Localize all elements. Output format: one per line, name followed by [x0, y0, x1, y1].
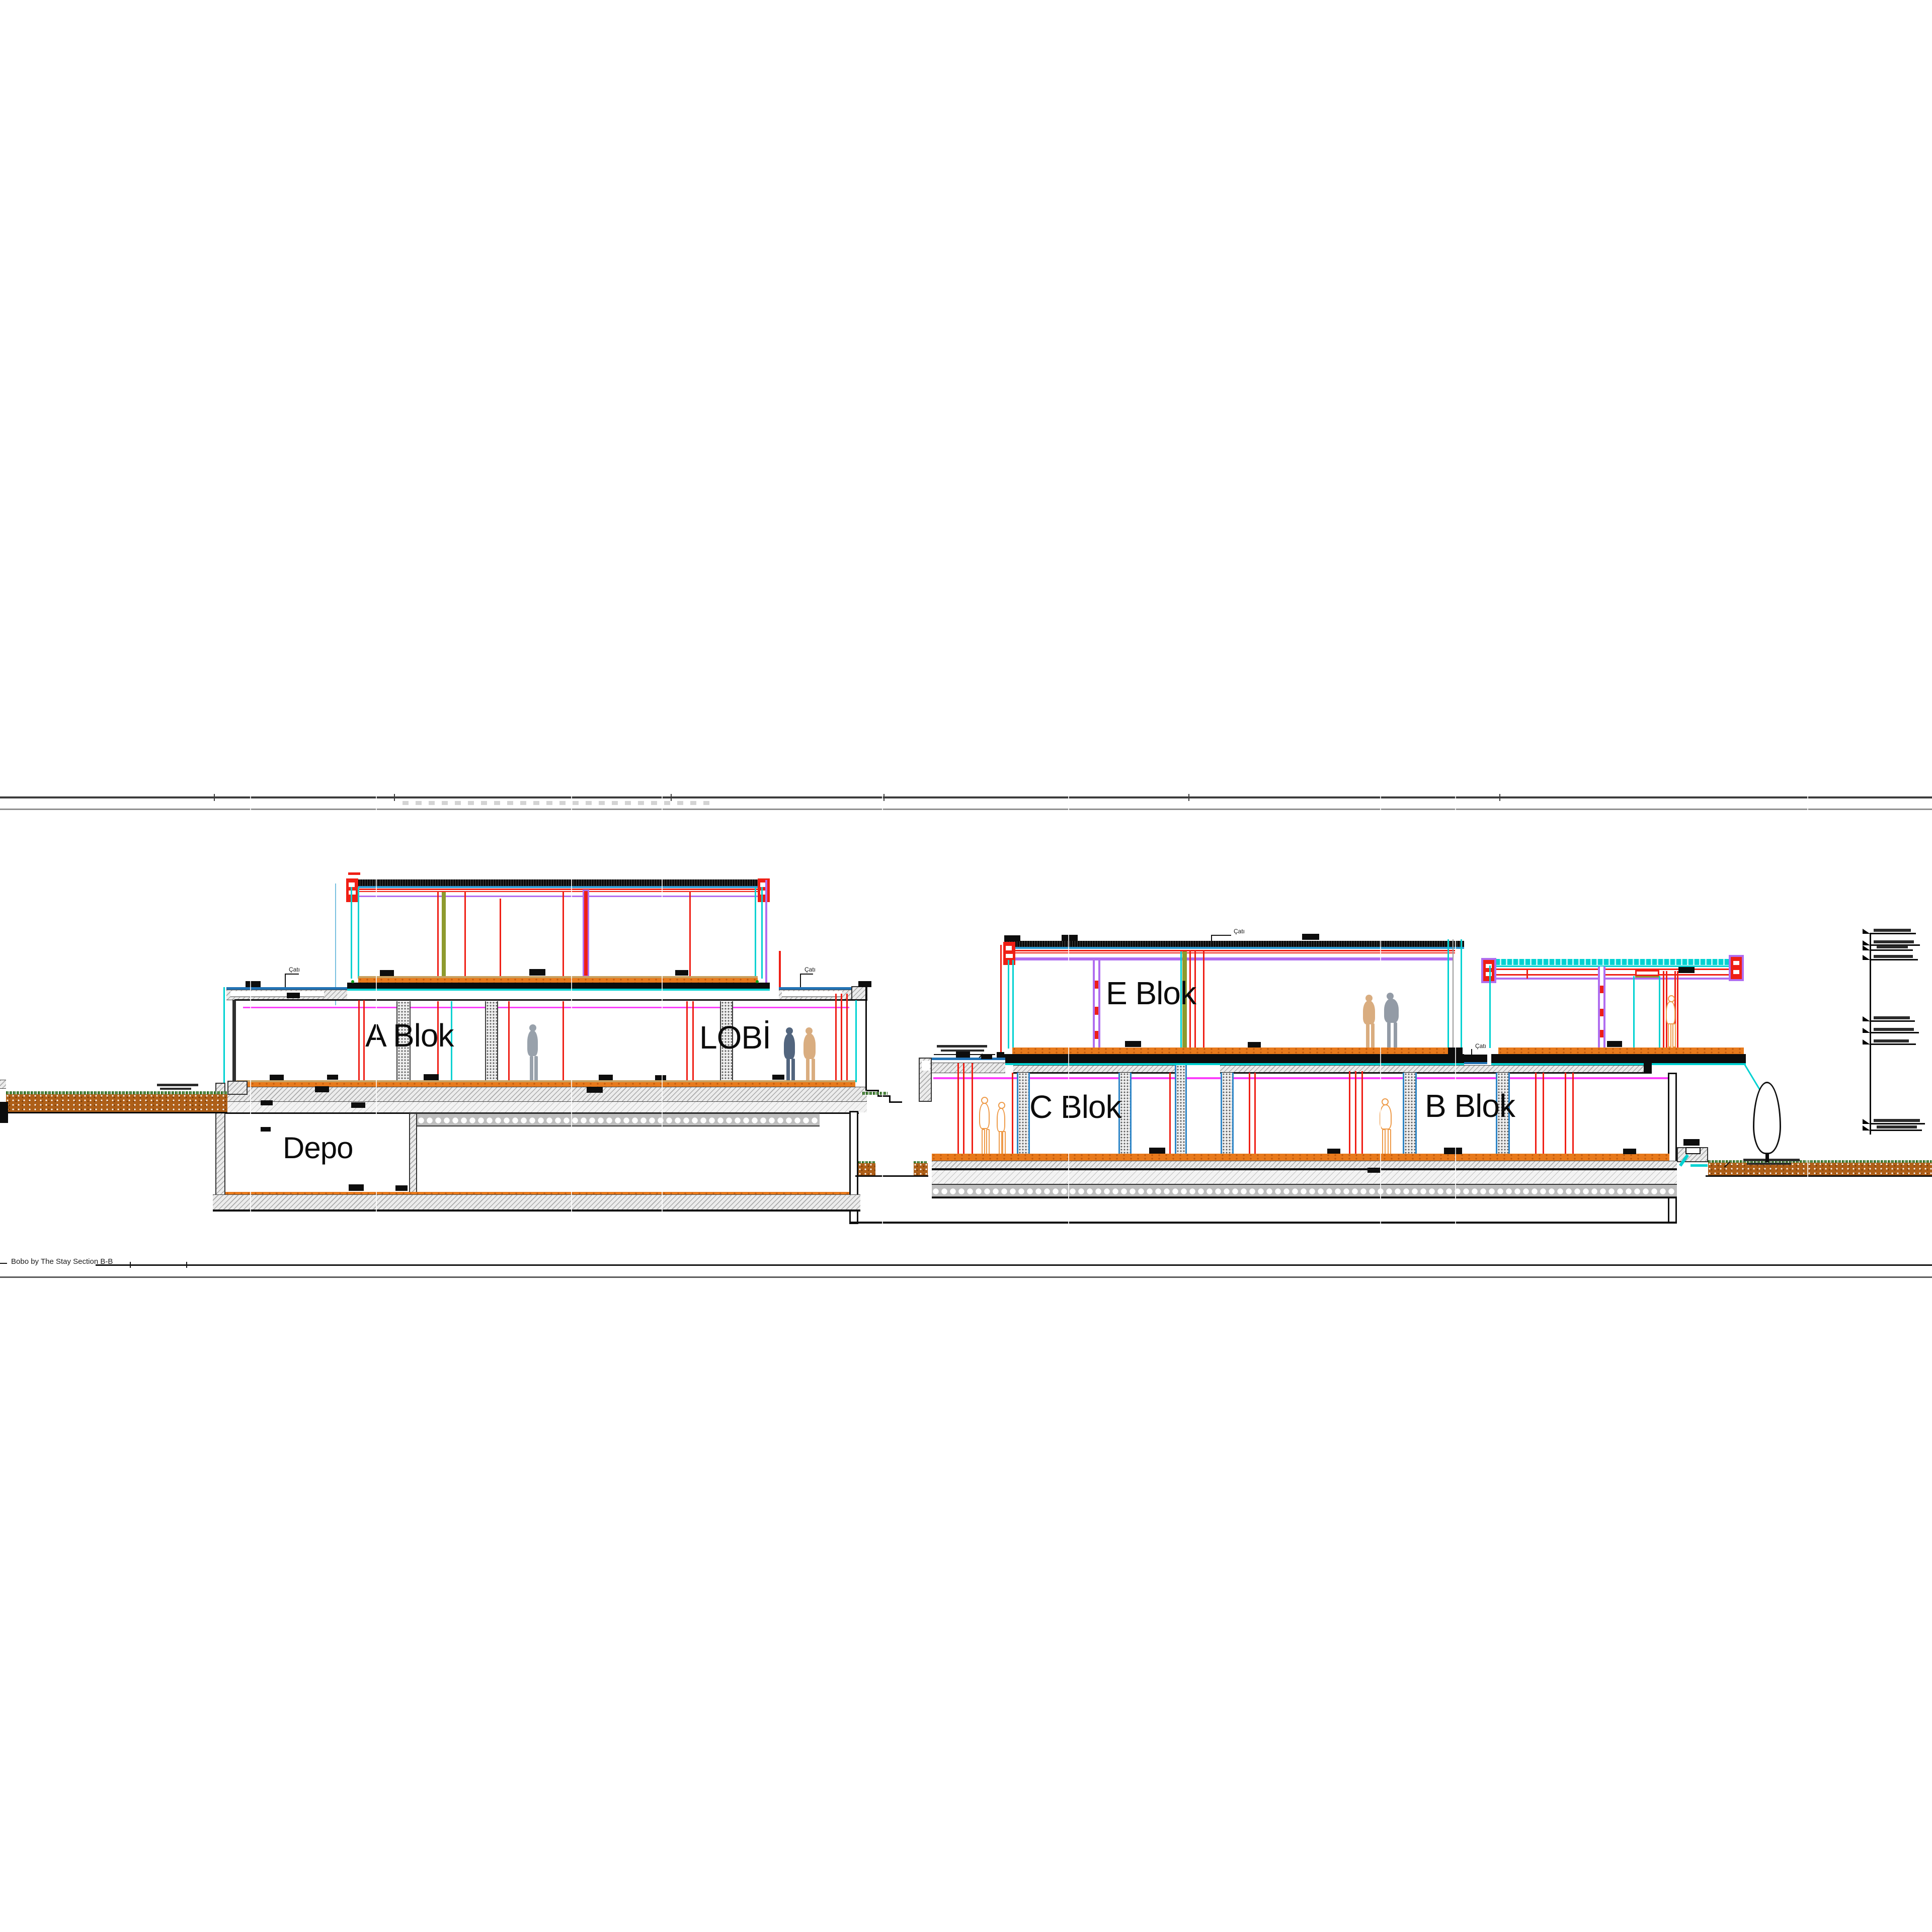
floor-fixture-glyph: [270, 1075, 284, 1080]
slab-end: [1644, 1063, 1652, 1074]
tree-canopy: [1753, 1082, 1781, 1154]
joint-dot: [756, 980, 759, 983]
note-leader: [1211, 935, 1212, 941]
person-figure: [1381, 993, 1405, 1048]
floor-slab: [1491, 1054, 1746, 1063]
marker-triangle: [1863, 1016, 1870, 1021]
part: [1363, 1001, 1375, 1024]
level-marker: [1862, 945, 1932, 952]
glass-line: [223, 987, 225, 1083]
part: [784, 1033, 795, 1059]
column: [1403, 1073, 1417, 1157]
person-figure: [1360, 995, 1380, 1048]
stud-line: [686, 1001, 688, 1082]
note-leader: [800, 974, 801, 987]
roof-glyph: [1678, 967, 1695, 973]
floor-finish: [1012, 1048, 1448, 1054]
person-figure: [1664, 995, 1679, 1048]
marker-line: [1870, 1043, 1916, 1045]
dash: [1095, 1007, 1098, 1015]
part: [979, 1103, 990, 1129]
step-line: [889, 1101, 902, 1103]
part: [1387, 1022, 1391, 1048]
roof-glass-band: [1483, 959, 1744, 965]
tree: [1753, 1082, 1782, 1163]
wall-frame-line: [765, 880, 767, 987]
slot: [1733, 970, 1739, 974]
marker-line: [1870, 949, 1913, 951]
roof-red-line: [1495, 974, 1733, 976]
slot: [1733, 961, 1739, 965]
corner-bracket-left: [1481, 958, 1496, 983]
glass-line: [358, 887, 359, 979]
person-figure: [995, 1102, 1009, 1156]
floor-finish: [236, 1082, 855, 1087]
end-wall: [1668, 1073, 1677, 1224]
drain-channel: [1685, 1147, 1701, 1154]
stud-line: [1169, 1073, 1171, 1159]
recess: [922, 1061, 930, 1071]
marker-triangle: [1863, 1028, 1870, 1033]
part: [1672, 1023, 1676, 1048]
floor-fixture-glyph: [675, 970, 688, 976]
fixture-glyph: [395, 1185, 408, 1191]
glass-line: [1008, 960, 1009, 1049]
level-marker: [1862, 955, 1932, 962]
glass-line: [1012, 960, 1014, 1049]
floor-fixture-glyph: [1444, 1148, 1462, 1154]
terrace-glyph: [981, 1054, 992, 1059]
marker-text: [1877, 945, 1908, 948]
part: [1666, 1001, 1675, 1024]
person-figure: [525, 1024, 542, 1083]
dash: [1600, 986, 1603, 993]
roof-membrane-line: [347, 886, 770, 888]
floor-slab: [932, 1161, 1677, 1169]
person-figure: [800, 1027, 821, 1085]
blinding-layer: [932, 1170, 1677, 1184]
terrace-recess: [230, 991, 324, 997]
sheet-seam: [1380, 796, 1381, 1278]
rule-tick: [214, 794, 215, 801]
part: [1384, 999, 1399, 1023]
glass-line: [855, 1000, 857, 1082]
stud-line: [972, 1063, 973, 1159]
olive-post: [442, 892, 446, 978]
marker-triangle: [1863, 945, 1870, 950]
fixture-glyph: [261, 1127, 271, 1132]
floor-finish: [932, 1154, 1669, 1161]
bottom-rule-tick: [186, 1262, 187, 1268]
part: [1382, 1129, 1386, 1155]
section-drawing-canvas: Çatı Çatı A Blok LOBİ: [0, 0, 1932, 1932]
ceiling-line: [1495, 978, 1738, 980]
marker-text: [1874, 1028, 1914, 1031]
hollowcore-slab: [932, 1184, 1677, 1197]
sheet-seam: [1455, 796, 1456, 1278]
slab-line: [932, 1197, 1677, 1198]
terrace-glyph: [956, 1052, 970, 1058]
note-leader: [285, 974, 299, 975]
roof-glass-line: [1483, 965, 1744, 967]
rule-tick: [671, 794, 672, 801]
glass-line: [761, 887, 763, 979]
marker-triangle: [1863, 940, 1870, 945]
ceiling-edge-line: [1013, 1072, 1186, 1074]
footer-tick: [0, 1263, 7, 1264]
room-label-e-blok: E Blok: [1106, 977, 1196, 1009]
sheet-seam: [662, 796, 663, 1278]
ceiling-line: [356, 896, 761, 897]
level-marker: [1862, 929, 1932, 936]
stud-line: [1012, 1073, 1013, 1156]
stud-line: [963, 1063, 964, 1159]
foundation-edge: [213, 1210, 860, 1212]
glass-line: [1447, 939, 1449, 1048]
soil-hatch: [6, 1094, 227, 1113]
roof-red-line: [1012, 952, 1455, 953]
part: [803, 1033, 816, 1059]
fixture-glyph: [351, 1102, 365, 1108]
floor-fixture-glyph: [1607, 1041, 1622, 1047]
stud-line: [500, 899, 501, 978]
tree-trunk: [1765, 1153, 1769, 1162]
lintel-detail: [1635, 970, 1659, 976]
lintel-line: [1635, 976, 1659, 978]
sheet-seam: [376, 796, 377, 1278]
part: [1380, 1104, 1392, 1130]
window-mullion: [1093, 960, 1100, 1048]
marker-triangle: [1863, 955, 1870, 960]
glass-line: [1489, 965, 1491, 1048]
fixture-glyph: [1367, 1168, 1381, 1173]
part: [1394, 1022, 1397, 1048]
stud-line: [562, 1001, 564, 1082]
dash: [1600, 1009, 1603, 1016]
room-label-b-blok: B Blok: [1425, 1090, 1515, 1122]
stud-line: [957, 1063, 959, 1159]
marker-line: [1870, 1130, 1922, 1131]
ceiling-edge-line: [234, 999, 867, 1001]
fixture-glyph: [261, 1100, 273, 1105]
slot: [1486, 964, 1492, 968]
step-detail: [1464, 1055, 1487, 1062]
terrace-glyph: [858, 981, 871, 987]
roof-slab-hatch: [1004, 941, 1464, 947]
bottom-rule-tick: [130, 1262, 131, 1268]
marker-text: [1874, 955, 1913, 958]
sheet-seam: [571, 796, 572, 1278]
stud-line: [1543, 1073, 1544, 1156]
marker-line: [1870, 933, 1916, 934]
slot: [349, 882, 355, 887]
fixture-glyph: [349, 1184, 364, 1191]
note-leader: [285, 974, 286, 987]
faint-dash-band: [403, 801, 712, 805]
ground-line: [1706, 1175, 1932, 1177]
soil-hatch: [914, 1163, 928, 1176]
slot: [349, 891, 356, 895]
room-label-c-blok: C Blok: [1029, 1091, 1121, 1123]
part: [1002, 1131, 1006, 1156]
wall-line: [1453, 939, 1454, 1048]
bracket-core: [1731, 957, 1742, 979]
roof-slab-hatch: [347, 879, 770, 886]
foundation-line: [849, 1222, 1677, 1224]
window-mullion: [583, 890, 589, 977]
glass-line: [351, 887, 352, 979]
bracket-core: [1483, 960, 1494, 981]
roof-red-line: [352, 891, 766, 892]
bottom-rule-2: [0, 1276, 1932, 1278]
floor-fixture-glyph: [327, 1075, 338, 1080]
column: [1221, 1073, 1234, 1157]
dash: [1095, 1031, 1098, 1039]
level-marker: [1862, 1028, 1932, 1035]
marker-text: [1874, 1016, 1910, 1019]
note-leader: [1471, 1049, 1472, 1055]
roof-red-line: [352, 889, 766, 890]
marker-text: [1874, 940, 1914, 943]
end-wall: [232, 1000, 236, 1083]
window-mullion: [1598, 967, 1605, 1048]
part: [1668, 1023, 1671, 1048]
top-rule: [0, 796, 1932, 798]
floor-fixture-glyph: [1248, 1042, 1261, 1048]
part: [534, 1056, 538, 1083]
person-figure: [977, 1097, 994, 1156]
marker-text: [1874, 929, 1911, 932]
floor-fixture-glyph: [1327, 1149, 1340, 1154]
stud-line: [1249, 1073, 1250, 1156]
marker-text: [1874, 1039, 1909, 1042]
stud-line: [1565, 1073, 1566, 1156]
roof-glyph: [1062, 935, 1078, 941]
retaining-wall: [0, 1102, 8, 1123]
terrace-recess: [782, 991, 842, 997]
part: [527, 1030, 538, 1056]
floor-soffit-line: [347, 989, 770, 991]
parapet-wall: [919, 1058, 932, 1102]
roof-note: Çatı: [1475, 1043, 1486, 1049]
eave-bracket-left: [346, 878, 358, 902]
fixture-glyph: [315, 1086, 329, 1092]
sheet-seam: [882, 796, 883, 1278]
fixture-glyph: [587, 1087, 603, 1093]
marker-text: [1877, 1125, 1917, 1129]
marker-triangle: [1863, 1039, 1870, 1044]
room-label-a-blok: A Blok: [365, 1019, 453, 1052]
slot: [1006, 946, 1012, 950]
floor-slab: [1003, 1054, 1464, 1063]
soil-hatch: [858, 1163, 875, 1176]
column: [1175, 1065, 1187, 1157]
column: [1017, 1073, 1030, 1157]
ceiling-line: [1013, 957, 1453, 960]
dash: [1600, 1030, 1603, 1037]
hollowcore-slab: [417, 1113, 820, 1126]
ceiling-edge-line: [1220, 1072, 1652, 1074]
stub-line: [1526, 969, 1528, 979]
stud-line: [692, 1001, 694, 1082]
roof-note: Çatı: [804, 967, 816, 973]
sheet-seam: [1807, 796, 1808, 1278]
marker-triangle: [1863, 1125, 1870, 1131]
glass-line: [1633, 976, 1635, 1048]
floor-fixture-glyph: [380, 970, 394, 976]
rule-tick: [1499, 794, 1500, 801]
micro-note: [160, 1088, 191, 1090]
part: [999, 1131, 1002, 1156]
foundation-slab: [213, 1194, 860, 1210]
roof-glyph: [1302, 934, 1319, 940]
person-figure: [1377, 1098, 1397, 1155]
floor-fixture-glyph: [1125, 1041, 1141, 1047]
micro-note: [937, 1045, 987, 1048]
floor-fixture-glyph: [655, 1075, 666, 1080]
step-wall-line: [865, 987, 867, 1091]
note-leader: [1211, 935, 1231, 936]
basement-wall: [409, 1113, 417, 1193]
fixture-glyph: [1683, 1139, 1700, 1146]
floor-slab: [347, 983, 770, 989]
drain-pipe: [1691, 1164, 1708, 1167]
floor-fixture-glyph: [529, 969, 545, 976]
bottom-rule: [96, 1264, 1932, 1266]
grass-strip: [862, 1092, 888, 1095]
marker-line: [1870, 959, 1918, 960]
marker-line: [1870, 1123, 1925, 1124]
roof-note: Çatı: [1234, 928, 1245, 934]
slot: [1006, 954, 1013, 958]
stud-line: [1572, 1073, 1574, 1156]
leader-line: [1000, 945, 1002, 1061]
marker-triangle: [1863, 1119, 1870, 1124]
floor-finish: [1498, 1048, 1744, 1054]
eave-bracket-right: [758, 878, 770, 902]
roof-membrane-line: [1004, 947, 1464, 949]
sheet-seam: [1068, 796, 1069, 1278]
rule-tick: [394, 794, 395, 801]
marker-triangle: [1863, 929, 1870, 934]
marker-line: [1870, 1020, 1915, 1022]
glass-line: [1461, 939, 1462, 1048]
roof-red-line: [1012, 950, 1455, 951]
note-leader: [800, 974, 813, 975]
part: [982, 1129, 985, 1156]
roof-red-line: [1495, 969, 1733, 970]
terrace-glyph: [287, 993, 300, 998]
slab-step: [227, 1081, 248, 1095]
leader-line: [779, 951, 781, 988]
sheet-seam: [250, 796, 251, 1278]
part: [986, 1129, 990, 1156]
marker-text: [1874, 1119, 1920, 1122]
part: [997, 1108, 1005, 1132]
marker-line: [1870, 1032, 1919, 1033]
stud-line: [1535, 1073, 1537, 1156]
terrace-slab: [924, 1063, 1005, 1073]
top-rule-2: [0, 809, 1932, 810]
stud-line: [464, 892, 466, 978]
stud-line: [437, 892, 439, 978]
glass-line: [1659, 976, 1660, 1048]
level-marker: [1862, 1016, 1932, 1023]
kerb: [0, 1080, 6, 1089]
part: [1366, 1023, 1370, 1048]
slot: [1486, 972, 1492, 976]
micro-note: [157, 1084, 198, 1086]
terrace-glyph: [246, 981, 261, 987]
part: [530, 1056, 533, 1083]
floor-fixture-glyph: [599, 1075, 613, 1080]
ground-line: [0, 1112, 227, 1113]
stud-line: [689, 892, 691, 978]
insulation-line: [243, 1007, 849, 1008]
room-label-lobi: LOBİ: [699, 1021, 771, 1054]
stud-line: [1203, 951, 1204, 1048]
corner-bracket-right: [1729, 955, 1744, 981]
column: [485, 1001, 498, 1083]
insulation-line: [933, 1077, 1669, 1079]
soil-hatch: [1708, 1163, 1932, 1176]
rule-tick: [883, 794, 884, 801]
dash: [1095, 981, 1098, 989]
level-marker: [1862, 1039, 1932, 1046]
step-flashing: [1464, 1062, 1487, 1064]
level-marker: [1862, 1125, 1932, 1133]
floor-fixture-glyph: [772, 1075, 784, 1080]
floor-fixture-glyph: [1149, 1148, 1165, 1154]
level-marker: [1862, 1119, 1932, 1126]
floor-finish: [358, 978, 758, 983]
floor-fixture-glyph: [424, 1074, 439, 1080]
stud-line: [1349, 1071, 1350, 1161]
part: [1371, 1023, 1375, 1048]
stud-line: [1254, 1073, 1256, 1156]
ground-slab-bed: [227, 1102, 867, 1112]
rule-tick: [1188, 794, 1189, 801]
glass-line: [755, 887, 756, 979]
floor-fixture-glyph: [1623, 1149, 1636, 1154]
mullion-core: [584, 891, 588, 976]
ground-line: [855, 1175, 928, 1177]
stud-line: [562, 892, 564, 978]
room-label-depo: Depo: [283, 1133, 353, 1163]
roof-parapet-dash: [348, 872, 360, 875]
joint-dot: [351, 980, 354, 983]
stud-line: [508, 1001, 510, 1082]
part: [1388, 1129, 1391, 1155]
parapet-cap: [1004, 935, 1020, 941]
roof-note: Çatı: [289, 967, 300, 973]
